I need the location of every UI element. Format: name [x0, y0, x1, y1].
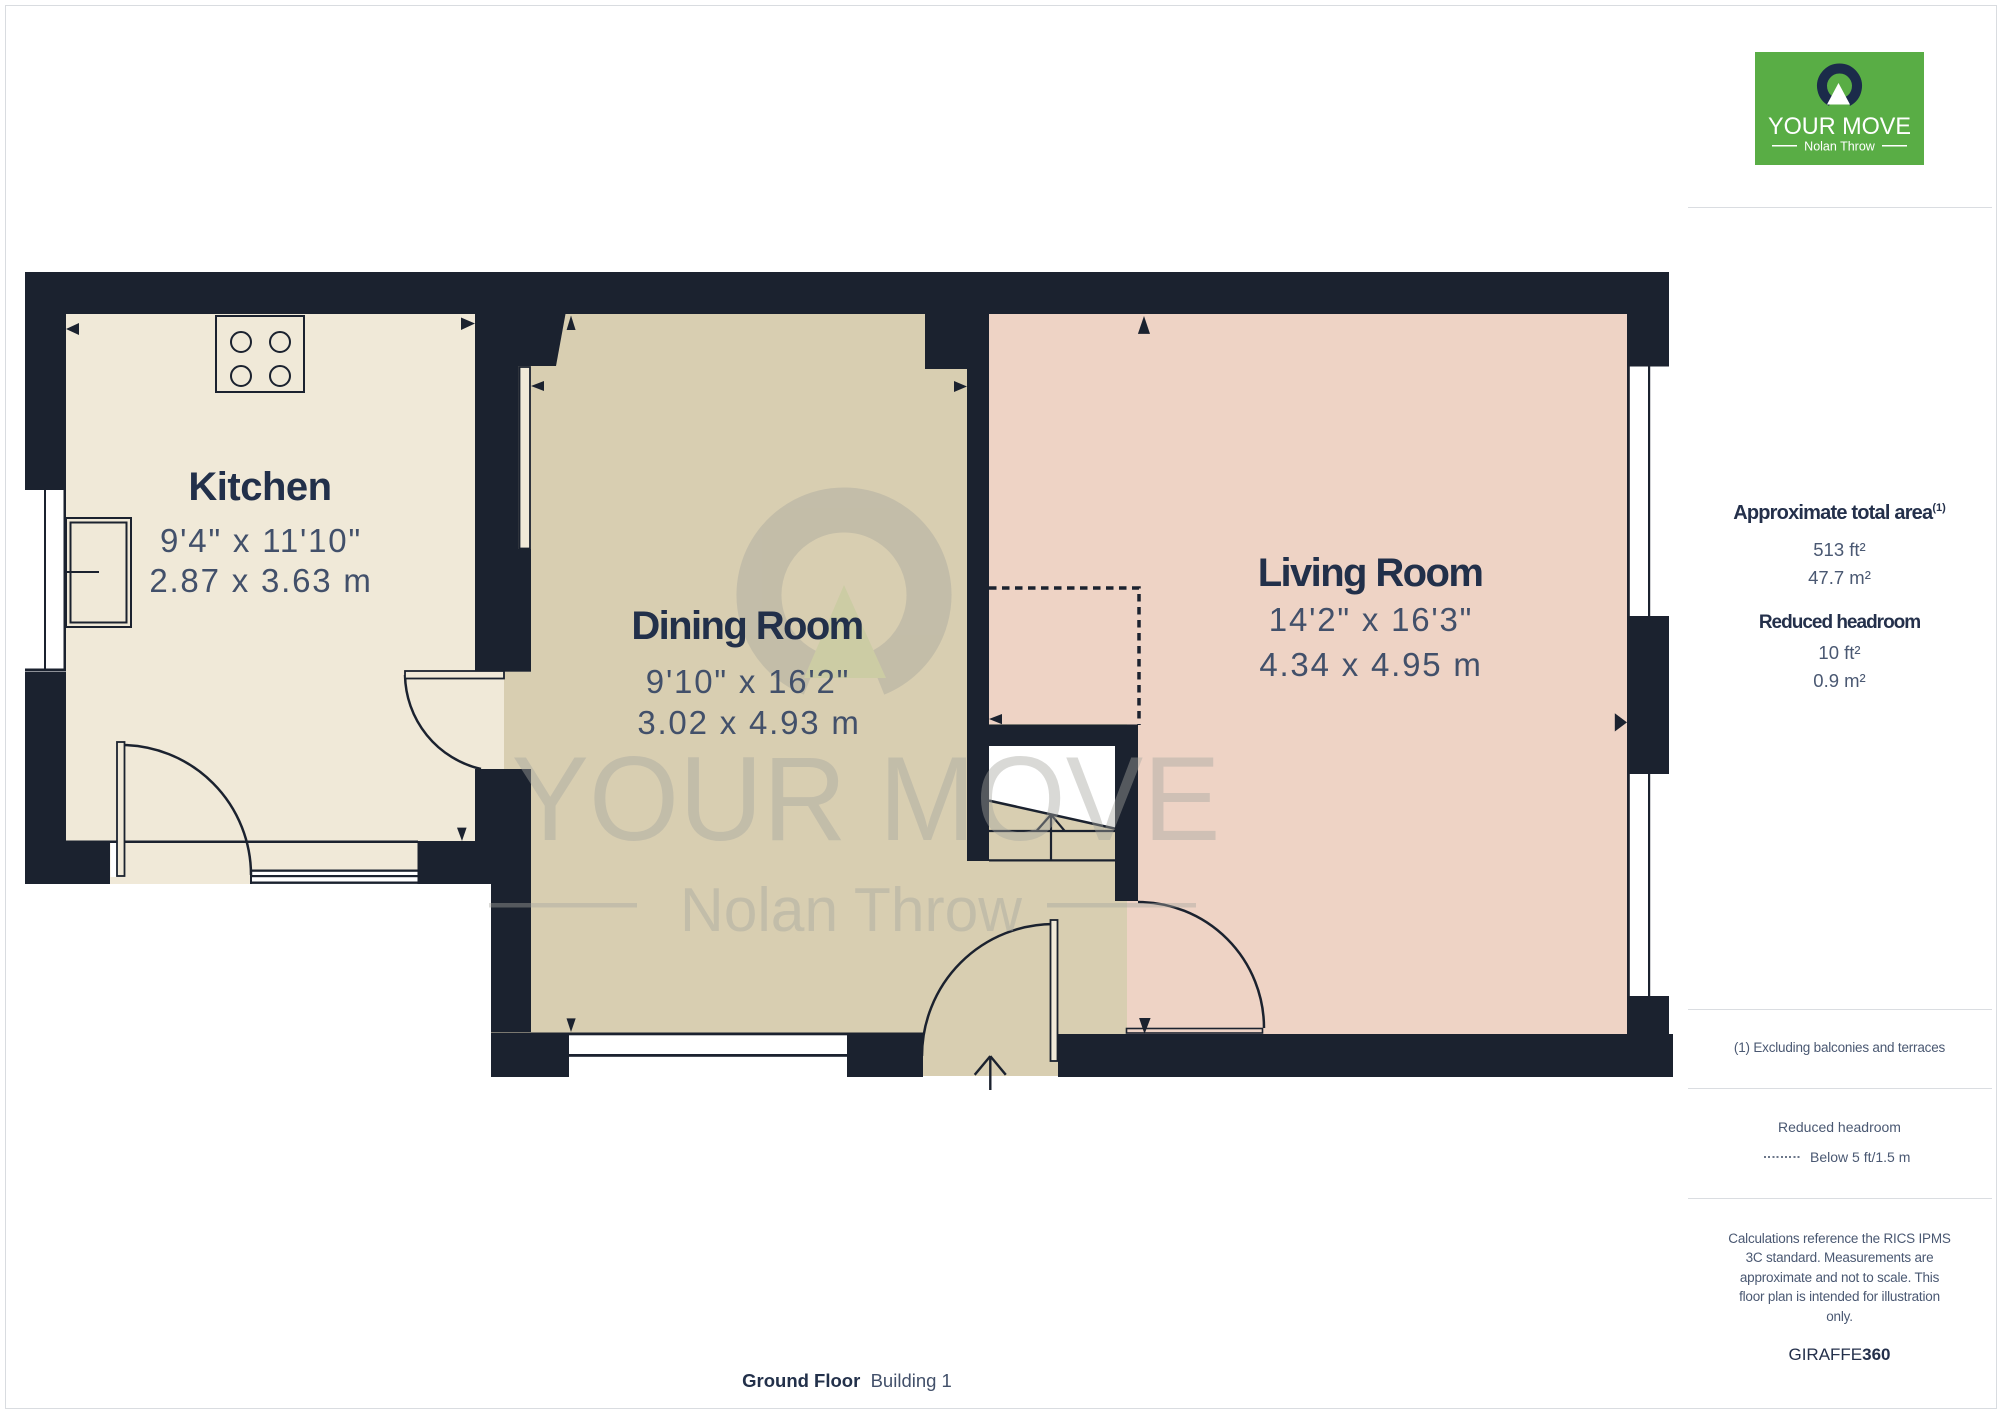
svg-text:Kitchen: Kitchen	[188, 465, 331, 509]
svg-text:YOUR MOVE: YOUR MOVE	[1768, 113, 1911, 140]
svg-text:2.87 x 3.63 m: 2.87 x 3.63 m	[149, 562, 372, 599]
svg-text:14'2" x 16'3": 14'2" x 16'3"	[1269, 601, 1473, 638]
svg-text:YOUR MOVE: YOUR MOVE	[512, 732, 1221, 866]
svg-text:Nolan Throw: Nolan Throw	[1804, 140, 1876, 154]
svg-text:4.34 x 4.95 m: 4.34 x 4.95 m	[1259, 646, 1482, 683]
svg-text:3.02 x 4.93 m: 3.02 x 4.93 m	[637, 704, 860, 741]
svg-text:Nolan Throw: Nolan Throw	[680, 876, 1022, 945]
svg-text:Living Room: Living Room	[1258, 551, 1483, 595]
svg-text:Dining Room: Dining Room	[631, 604, 862, 648]
svg-text:9'10" x 16'2": 9'10" x 16'2"	[646, 663, 850, 700]
svg-text:9'4" x 11'10": 9'4" x 11'10"	[160, 522, 362, 559]
